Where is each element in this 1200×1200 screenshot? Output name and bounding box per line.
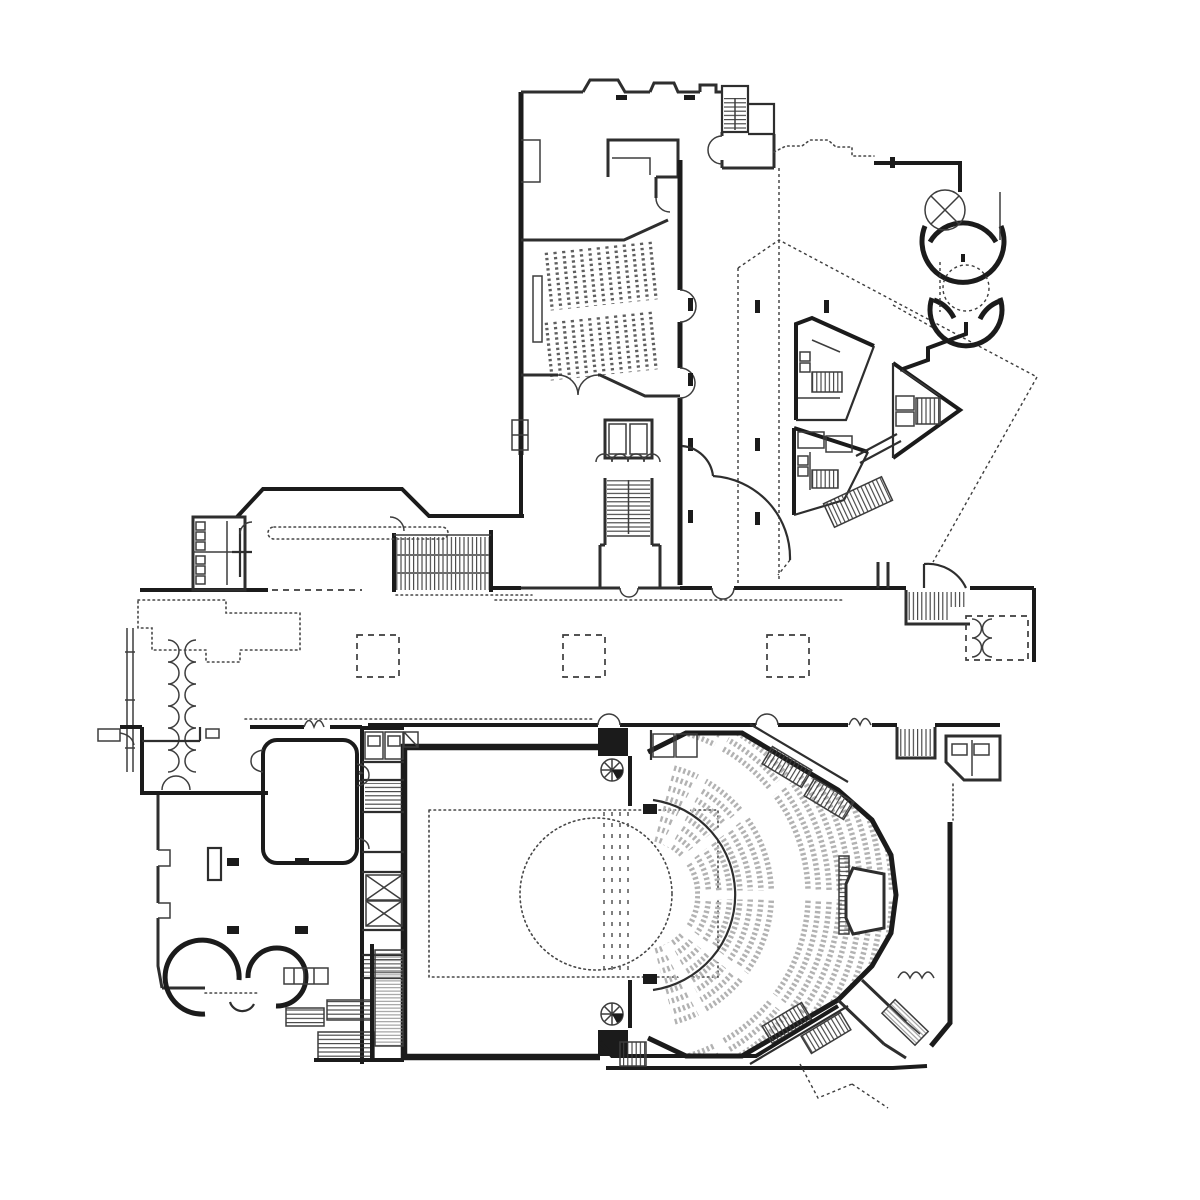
exterior-steps-outline xyxy=(138,600,300,662)
triangle-pod-east xyxy=(893,363,960,458)
door-zigzag xyxy=(898,972,934,978)
canopy-dashed-outline xyxy=(738,168,1037,583)
round-corner-room xyxy=(251,740,369,864)
foyer-grand-stair xyxy=(394,530,532,595)
door-leaf xyxy=(598,714,620,725)
small-hall-seating-lower-bank xyxy=(546,312,656,381)
small-hall-seating-upper-bank xyxy=(546,242,656,311)
west-facade-wall xyxy=(158,795,260,993)
door-leaf xyxy=(240,517,404,534)
foyer-east-stair xyxy=(906,590,970,624)
east-boundary-wall xyxy=(931,822,950,1046)
curved-partition xyxy=(682,446,790,575)
small-hall-south-wall xyxy=(521,375,680,396)
lounge-block xyxy=(98,727,404,1062)
stage-house xyxy=(356,728,718,1064)
vestibule-doors xyxy=(185,640,196,772)
small-hall-stage-wall xyxy=(521,220,668,240)
small-hall-north-wall xyxy=(521,80,722,92)
side-platform xyxy=(533,276,542,342)
south-east-stair xyxy=(897,727,935,758)
door-leaf xyxy=(558,375,598,395)
small-hall-block xyxy=(512,80,962,597)
door-leaf xyxy=(620,588,638,597)
curtain-lines xyxy=(604,812,628,976)
control-booth xyxy=(846,868,884,934)
curved-wall-rooms xyxy=(165,940,306,1014)
wall-niche xyxy=(521,140,540,182)
foyer-south-wall xyxy=(120,725,1000,727)
proscenium-tower-north xyxy=(598,728,628,756)
spiral-stair-south xyxy=(601,1003,623,1025)
triangle-pod-north xyxy=(796,318,874,420)
elevator-core xyxy=(596,420,660,588)
kiosk xyxy=(208,848,221,880)
door-leaf xyxy=(712,588,734,599)
revolving-stage xyxy=(520,818,672,970)
floor-plan-canvas xyxy=(0,0,1200,1200)
column-marker xyxy=(890,157,895,168)
service-stair xyxy=(365,783,402,809)
east-entrance xyxy=(966,616,1028,660)
spiral-stair-north xyxy=(601,759,623,781)
floor-plan-page xyxy=(0,0,1200,1200)
door-leaf xyxy=(162,776,190,790)
elevator-drum-pod xyxy=(922,190,1004,282)
column-markers xyxy=(688,298,829,525)
backstage-ramp xyxy=(375,950,403,1046)
door-leaf xyxy=(656,198,670,212)
spiral-stair-outline xyxy=(943,265,989,311)
quarter-arc-room xyxy=(924,564,966,588)
door-leaf xyxy=(251,750,369,849)
exit-dashed-outline xyxy=(800,1064,888,1108)
vestibule-doors xyxy=(168,640,179,772)
door-leaf xyxy=(756,714,778,725)
projection-room xyxy=(608,140,678,212)
foyer-columns xyxy=(357,635,809,677)
door-leaf xyxy=(708,136,722,164)
north-stair xyxy=(708,86,774,168)
northwest-rooms xyxy=(98,727,268,795)
terrace-north-wall xyxy=(874,163,962,192)
east-wc-pod xyxy=(946,736,1000,780)
column-marker xyxy=(616,95,627,100)
terrace-edge xyxy=(774,140,874,156)
column-marker xyxy=(684,95,695,100)
